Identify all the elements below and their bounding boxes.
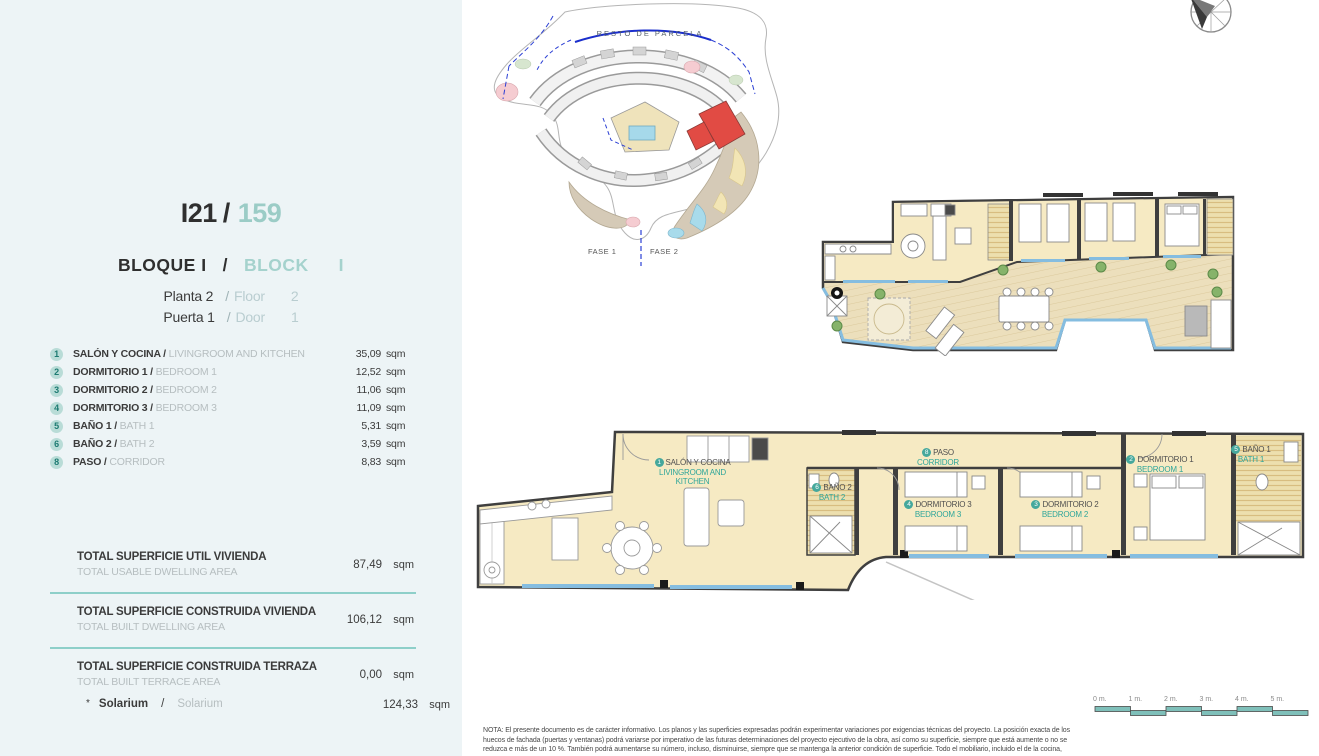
pool xyxy=(629,126,655,140)
room-area: 5,31 xyxy=(339,420,381,432)
floor-plan-upper xyxy=(813,190,1240,356)
room-name-es: BAÑO 2 / xyxy=(73,438,120,450)
room-name-en: BEDROOM 3 xyxy=(156,402,217,414)
room-name: DORMITORIO 2 / BEDROOM 2 xyxy=(73,384,339,396)
total-value: 106,12 xyxy=(322,614,382,626)
room-name: PASO / CORRIDOR xyxy=(73,456,339,468)
room-name-es: DORMITORIO 2 / xyxy=(73,384,156,396)
room-area-unit: sqm xyxy=(381,438,416,450)
plan-label-salon-number: 1 xyxy=(655,458,664,467)
solarium-label-en: Solarium xyxy=(177,698,222,710)
unit-code: I21 xyxy=(181,198,217,228)
room-name-es: BAÑO 1 / xyxy=(73,420,120,432)
room-area: 3,59 xyxy=(339,438,381,450)
room-row: 8PASO / CORRIDOR8,83sqm xyxy=(50,453,416,471)
room-name: BAÑO 2 / BATH 2 xyxy=(73,438,339,450)
room-area: 11,06 xyxy=(339,384,381,396)
plan-label-dorm3: 4DORMITORIO 3 BEDROOM 3 xyxy=(883,500,993,519)
room-name-en: CORRIDOR xyxy=(109,456,165,468)
room-area-unit: sqm xyxy=(381,384,416,396)
unit-title: I21/159 xyxy=(0,198,462,229)
room-area: 8,83 xyxy=(339,456,381,468)
solarium-row: *Solarium/Solarium 124,33 sqm xyxy=(50,698,452,714)
solarium-asterisk: * xyxy=(86,698,90,709)
totals-section: TOTAL SUPERFICIE UTIL VIVIENDATOTAL USAB… xyxy=(50,548,416,697)
note-line: reduzca e más de un 10 %. También podrá … xyxy=(483,745,1301,755)
plan-label-bano2: 6BAÑO 2 BATH 2 xyxy=(792,483,872,502)
total-unit: sqm xyxy=(393,614,414,626)
scale-label: 5 m. xyxy=(1271,696,1301,703)
room-name-es: DORMITORIO 3 / xyxy=(73,402,156,414)
plan-label-dorm2: 3DORMITORIO 2 BEDROOM 2 xyxy=(1010,500,1120,519)
pergola xyxy=(868,298,910,340)
block-number-en: I xyxy=(339,255,344,275)
room-number-badge: 8 xyxy=(50,456,63,469)
section-divider xyxy=(50,592,416,594)
room-name: SALÓN Y COCINA / LIVINGROOM AND KITCHEN xyxy=(73,348,339,360)
room-number-badge: 2 xyxy=(50,366,63,379)
total-block: TOTAL SUPERFICIE CONSTRUIDA TERRAZATOTAL… xyxy=(50,658,416,697)
plan-label-paso: 8PASO CORRIDOR xyxy=(898,448,978,467)
floor-line: Planta 2/Floor2 xyxy=(0,288,462,304)
room-name-en: LIVINGROOM AND KITCHEN xyxy=(169,348,305,360)
total-block: TOTAL SUPERFICIE CONSTRUIDA VIVIENDATOTA… xyxy=(50,603,416,642)
site-plan xyxy=(483,0,813,268)
door-separator: / xyxy=(227,309,231,325)
block-name-es: BLOQUE I xyxy=(118,255,207,275)
room-area: 35,09 xyxy=(339,348,381,360)
fase2-label: FASE 2 xyxy=(650,247,678,256)
room-name-en: BATH 1 xyxy=(120,420,155,432)
room-number-badge: 4 xyxy=(50,402,63,415)
room-number-badge: 3 xyxy=(50,384,63,397)
door-line: Puerta 1/Door1 xyxy=(0,309,462,325)
neighbor-terrace-edge xyxy=(886,562,982,600)
compass-icon xyxy=(1183,0,1239,46)
unit-number: 159 xyxy=(238,198,282,228)
room-row: 5BAÑO 1 / BATH 15,31sqm xyxy=(50,417,416,435)
room-area: 11,09 xyxy=(339,402,381,414)
scale-bar: 0 m.1 m.2 m.3 m.4 m.5 m. xyxy=(1093,696,1313,720)
scale-label: 2 m. xyxy=(1164,696,1194,703)
scale-label: 0 m. xyxy=(1093,696,1123,703)
floor-separator: / xyxy=(225,288,229,304)
room-number-badge: 6 xyxy=(50,438,63,451)
solarium-value: 124,33 xyxy=(358,699,418,711)
scale-label: 4 m. xyxy=(1235,696,1265,703)
unit-separator: / xyxy=(223,198,230,228)
total-unit: sqm xyxy=(393,559,414,571)
plan-label-salon: 1SALÓN Y COCINA LIVINGROOM AND KITCHEN xyxy=(620,458,765,487)
room-row: 1SALÓN Y COCINA / LIVINGROOM AND KITCHEN… xyxy=(50,345,416,363)
room-list: 1SALÓN Y COCINA / LIVINGROOM AND KITCHEN… xyxy=(50,345,416,471)
solarium-unit: sqm xyxy=(429,699,450,711)
room-row: 3DORMITORIO 2 / BEDROOM 211,06sqm xyxy=(50,381,416,399)
solarium-label-es: Solarium xyxy=(99,698,148,710)
note-line: huecos de fachada (puertas y ventanas) p… xyxy=(483,736,1301,746)
info-panel: I21/159 BLOQUE I/BLOCKI Planta 2/Floor2 … xyxy=(0,0,462,756)
legal-note: NOTA: El presente documento es de caráct… xyxy=(483,726,1301,755)
block-name-en: BLOCK xyxy=(244,255,309,275)
room-area-unit: sqm xyxy=(381,456,416,468)
total-value: 87,49 xyxy=(322,559,382,571)
room-area-unit: sqm xyxy=(381,420,416,432)
door-es: Puerta 1 xyxy=(163,309,214,325)
room-number-badge: 5 xyxy=(50,420,63,433)
scale-bar-graphic xyxy=(1093,705,1311,718)
room-area-unit: sqm xyxy=(381,366,416,378)
room-name-es: DORMITORIO 1 / xyxy=(73,366,156,378)
section-divider xyxy=(50,647,416,649)
total-value: 0,00 xyxy=(322,669,382,681)
room-row: 4DORMITORIO 3 / BEDROOM 311,09sqm xyxy=(50,399,416,417)
room-row: 2DORMITORIO 1 / BEDROOM 112,52sqm xyxy=(50,363,416,381)
room-name: DORMITORIO 3 / BEDROOM 3 xyxy=(73,402,339,414)
block-separator: / xyxy=(223,255,228,275)
resto-de-parcela-label: RESTO DE PARCELA xyxy=(570,29,730,38)
room-name-en: BATH 2 xyxy=(120,438,155,450)
room-name: BAÑO 1 / BATH 1 xyxy=(73,420,339,432)
room-name-en: BEDROOM 2 xyxy=(156,384,217,396)
total-block: TOTAL SUPERFICIE UTIL VIVIENDATOTAL USAB… xyxy=(50,548,416,587)
room-name: DORMITORIO 1 / BEDROOM 1 xyxy=(73,366,339,378)
room-row: 6BAÑO 2 / BATH 23,59sqm xyxy=(50,435,416,453)
note-line: NOTA: El presente documento es de caráct… xyxy=(483,726,1301,736)
solarium-separator: / xyxy=(161,698,164,710)
door-en: Door xyxy=(235,309,265,325)
total-unit: sqm xyxy=(393,669,414,681)
room-area: 12,52 xyxy=(339,366,381,378)
room-name-es: SALÓN Y COCINA / xyxy=(73,348,169,360)
room-area-unit: sqm xyxy=(381,402,416,414)
room-name-en: BEDROOM 1 xyxy=(156,366,217,378)
floor-es: Planta 2 xyxy=(164,288,214,304)
block-title: BLOQUE I/BLOCKI xyxy=(0,255,462,276)
room-number-badge: 1 xyxy=(50,348,63,361)
room-area-unit: sqm xyxy=(381,348,416,360)
scale-label: 3 m. xyxy=(1200,696,1230,703)
fase1-label: FASE 1 xyxy=(588,247,616,256)
scale-label: 1 m. xyxy=(1129,696,1159,703)
room-name-es: PASO / xyxy=(73,456,109,468)
plan-label-dorm1: 2DORMITORIO 1 BEDROOM 1 xyxy=(1105,455,1215,474)
door-number-en: 1 xyxy=(291,309,299,325)
floor-en: Floor xyxy=(234,288,265,304)
plan-label-bano1: 5BAÑO 1 BATH 1 xyxy=(1215,445,1287,464)
floor-number-en: 2 xyxy=(291,288,299,304)
plan-sheet: I21/159 BLOQUE I/BLOCKI Planta 2/Floor2 … xyxy=(0,0,1319,756)
